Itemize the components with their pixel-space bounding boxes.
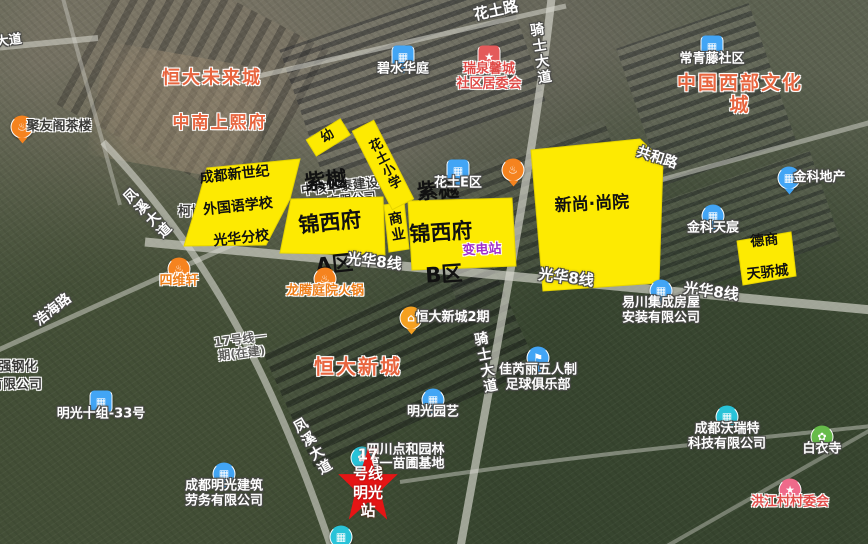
building-icon: ▦ bbox=[330, 526, 353, 544]
poi-jinke-tianchen[interactable]: ▦金科天宸 bbox=[702, 205, 725, 228]
poi-label-jiaruili-football: 佳芮丽五人制 足球俱乐部 bbox=[499, 364, 577, 394]
deshang-line1: 德商 bbox=[743, 231, 786, 251]
poi-label-bishui-huating: 碧水华庭 bbox=[377, 63, 429, 78]
area-label-1: 中南上熙府 bbox=[173, 114, 268, 134]
text-fragment-4: 有限公司 bbox=[0, 379, 42, 394]
parcel-school-label: 成都新世纪 外国语学校 光华分校 bbox=[197, 147, 278, 266]
poi-label-ruiquan-community-committee: 瑞泉馨城 社区居委会 bbox=[456, 63, 521, 93]
poi-label-hongjiang-committee: 洪江村村委会 bbox=[751, 496, 829, 511]
poi-label-minguang-labor: 成都明光建筑 劳务有限公司 bbox=[185, 480, 263, 510]
poi-jinke-dichan[interactable]: ▦金科地产 bbox=[778, 167, 801, 190]
poi-label-yichuan-housing: 易川集成房屋 安装有限公司 bbox=[622, 297, 700, 327]
poi-longteng-hotpot[interactable]: ♨龙腾庭院火锅 bbox=[314, 268, 337, 291]
deshang-line2: 天骄城 bbox=[746, 263, 789, 283]
poi-yichuan-housing[interactable]: ▦易川集成房屋 安装有限公司 bbox=[650, 280, 673, 303]
parcel-school-line3: 光华分校 bbox=[206, 227, 277, 250]
food-icon: ♨ bbox=[502, 159, 525, 182]
poi-label-hengda-xincheng-2: 恒大新城2期 bbox=[416, 311, 490, 326]
poi-ruiquan-community-committee[interactable]: ★瑞泉馨城 社区居委会 bbox=[478, 46, 501, 69]
poi-label-jinke-dichan: 金科地产 bbox=[794, 171, 846, 186]
satellite-map[interactable]: 成都新世纪 外国语学校 光华分校 紫樾 锦西府 A区 紫樾 锦西府 B区 新尚·… bbox=[0, 0, 868, 544]
poi-huatu-e-zone[interactable]: ▦花土E区 bbox=[447, 160, 470, 183]
poi-minguang-yuanyi[interactable]: ▦明光园艺 bbox=[422, 389, 445, 412]
parcel-deshang-label: 德商 天骄城 bbox=[741, 215, 791, 299]
poi-jiaruili-football[interactable]: ⚑佳芮丽五人制 足球俱乐部 bbox=[527, 347, 550, 370]
poi-hongjiang-committee[interactable]: ★洪江村村委会 bbox=[779, 479, 802, 502]
poi-wote-tech[interactable]: ▦成都沃瑞特 科技有限公司 bbox=[716, 406, 739, 429]
parcel-school-line1: 成都新世纪 bbox=[199, 163, 270, 186]
poi-siweixuan[interactable]: ♨四维轩 bbox=[168, 258, 191, 281]
poi-label-huatu-e-zone: 花土E区 bbox=[434, 177, 482, 192]
substation-label: 变电站 bbox=[462, 243, 502, 260]
station-label: 17号线 明光站 bbox=[353, 446, 384, 521]
area-label-3: 恒大新城 bbox=[314, 356, 402, 379]
poi-label-jinke-tianchen: 金科天宸 bbox=[687, 222, 739, 237]
poi-label-longteng-hotpot: 龙腾庭院火锅 bbox=[286, 285, 364, 300]
house-icon-glyph: ⌂ bbox=[407, 313, 415, 324]
poi-changqingteng-community[interactable]: ▦常青藤社区 bbox=[701, 36, 724, 59]
metro-station-marker[interactable]: 17号线 明光站 bbox=[337, 449, 399, 525]
poi-bishui-huating[interactable]: ▦碧水华庭 bbox=[392, 46, 415, 69]
poi-edge-poi[interactable]: ▦ bbox=[330, 526, 353, 544]
tea-icon-glyph: ♨ bbox=[17, 122, 27, 133]
poi-label-minguang-yuanyi: 明光园艺 bbox=[407, 406, 459, 421]
poi-label-siweixuan: 四维轩 bbox=[159, 275, 198, 290]
poi-restaurant-poi[interactable]: ♨ bbox=[502, 159, 525, 182]
area-label-2: 中国西部文化城 bbox=[676, 73, 804, 117]
poi-minguang-labor[interactable]: ▦成都明光建筑 劳务有限公司 bbox=[213, 463, 236, 486]
text-fragment-3: 强钢化 bbox=[0, 361, 38, 376]
zone-b-line2: 锦西府 bbox=[409, 220, 473, 245]
area-label-0: 恒大未来城 bbox=[162, 69, 262, 90]
poi-label-baiyi-temple: 白衣寺 bbox=[802, 443, 841, 458]
poi-label-juyouge-teahouse: 聚友阁茶楼 bbox=[27, 120, 92, 135]
poi-label-minguang-10-33: 明光十组-33号 bbox=[57, 408, 146, 423]
poi-minguang-10-33[interactable]: ▦明光十组-33号 bbox=[90, 391, 113, 414]
building-icon-glyph: ▦ bbox=[336, 532, 346, 543]
zone-a-line2: 锦西府 bbox=[298, 209, 363, 236]
parcel-xinshang-label: 新尚·尚院 bbox=[554, 193, 629, 216]
poi-label-wote-tech: 成都沃瑞特 科技有限公司 bbox=[688, 423, 766, 453]
poi-label-changqingteng-community: 常青藤社区 bbox=[679, 53, 744, 68]
zone-b-line3: B区 bbox=[412, 262, 476, 287]
zone-a-line1: 紫樾 bbox=[293, 167, 358, 194]
poi-baiyi-temple[interactable]: ✿白衣寺 bbox=[811, 426, 834, 449]
poi-juyouge-teahouse[interactable]: ♨聚友阁茶楼 bbox=[11, 116, 34, 139]
poi-hengda-xincheng-2[interactable]: ⌂恒大新城2期 bbox=[400, 307, 423, 330]
parcel-school-line2: 外国语学校 bbox=[202, 195, 273, 218]
food-icon-glyph: ♨ bbox=[508, 165, 518, 176]
